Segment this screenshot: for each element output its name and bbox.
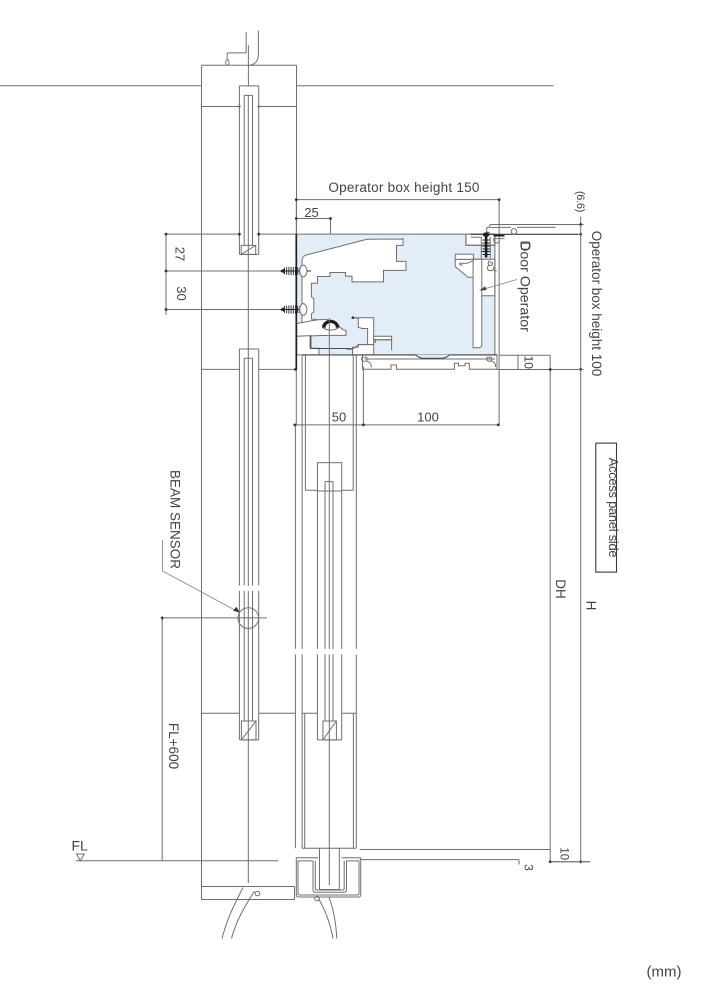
svg-text:27: 27 (173, 247, 188, 261)
svg-text:BEAM SENSOR: BEAM SENSOR (168, 470, 183, 569)
svg-text:10: 10 (522, 356, 536, 370)
svg-text:Operator box height 150: Operator box height 150 (328, 180, 479, 195)
svg-text:Operator box height 100: Operator box height 100 (589, 231, 604, 377)
svg-text:Access panel side: Access panel side (606, 458, 621, 558)
svg-text:25: 25 (304, 205, 318, 220)
svg-text:FL: FL (72, 838, 89, 854)
svg-text:30: 30 (174, 286, 189, 300)
svg-text:FL+600: FL+600 (166, 723, 181, 769)
svg-text:50: 50 (332, 410, 346, 425)
svg-text:(mm): (mm) (647, 964, 682, 981)
svg-text:10: 10 (558, 847, 570, 860)
svg-text:DH: DH (553, 579, 568, 599)
svg-text:(6.6): (6.6) (574, 191, 586, 212)
svg-text:Door Operator: Door Operator (517, 241, 533, 332)
svg-text:3: 3 (522, 864, 536, 871)
svg-text:H: H (584, 601, 599, 611)
svg-text:100: 100 (417, 410, 439, 425)
